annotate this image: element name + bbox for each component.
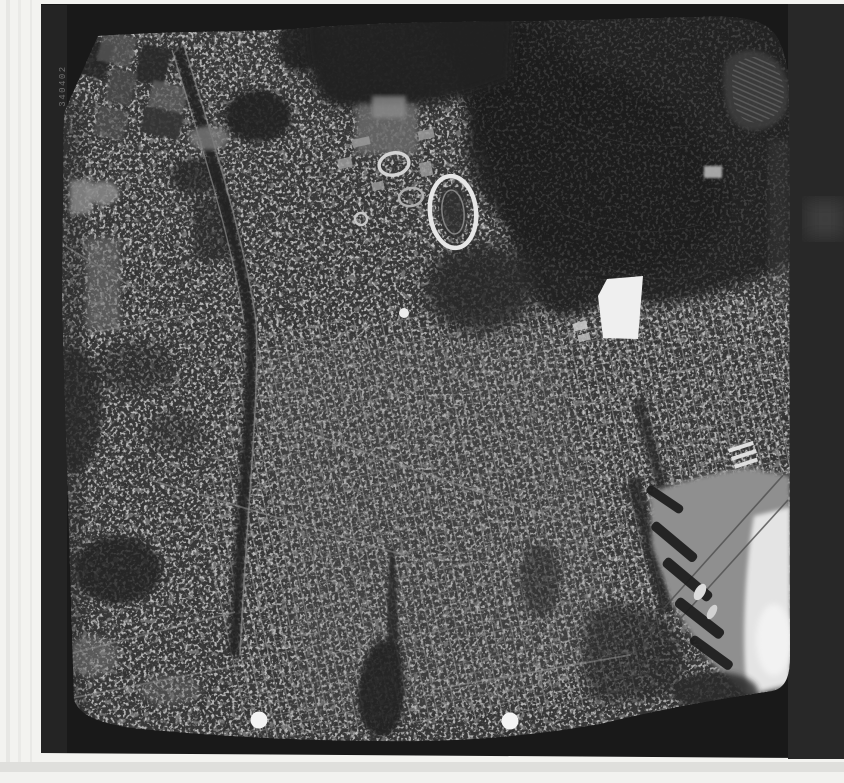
svg-text:340402: 340402 <box>58 65 68 106</box>
